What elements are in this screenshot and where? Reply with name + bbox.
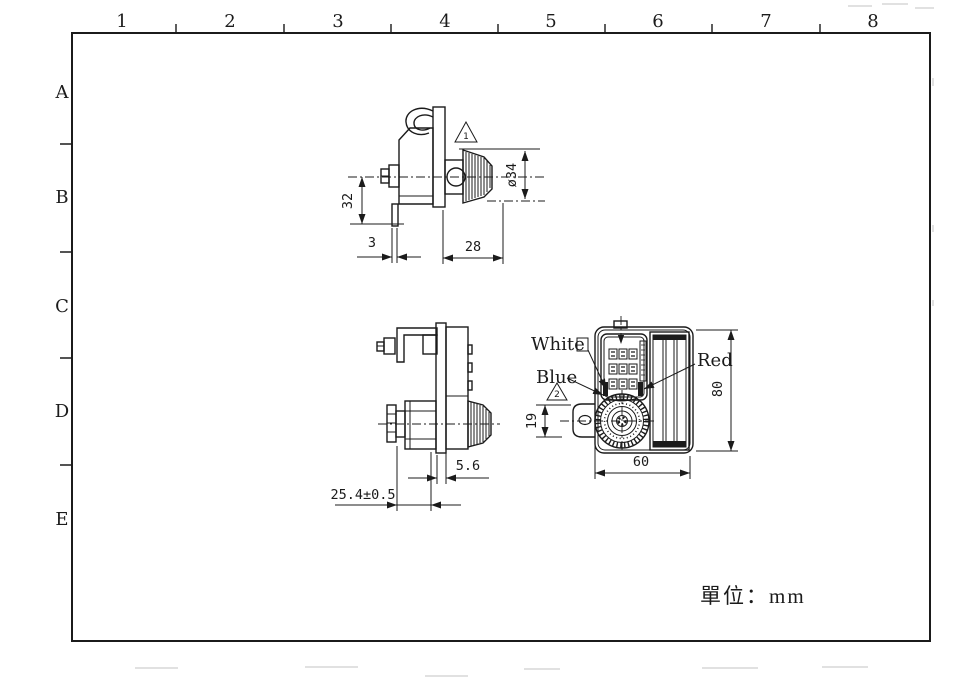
- column-ticks: [176, 24, 820, 33]
- digit-wheel-marks: [611, 352, 635, 386]
- border-frame: [72, 33, 930, 641]
- row-label: C: [55, 296, 69, 317]
- profile-view: 5.6 25.4±0.5: [330, 323, 500, 511]
- note-triangle-1: 1: [455, 122, 477, 142]
- dim-latch-offset: 3: [368, 235, 376, 251]
- label-red: Red: [697, 350, 733, 371]
- column-label: 5: [545, 11, 556, 32]
- drawing-frame: 1 2 3 4 5 6 7 8 A B C D E: [55, 11, 931, 641]
- front-view: White Blue Red 2 19 80 60: [524, 316, 738, 479]
- row-labels: A B C D E: [55, 82, 70, 530]
- label-blue: Blue: [536, 367, 577, 388]
- row-label: D: [55, 401, 69, 422]
- unit-note: 單位：mm: [700, 584, 806, 608]
- digit-wheels: [603, 341, 646, 401]
- note-ref-number: 2: [554, 390, 560, 400]
- note-ref-number: 1: [463, 132, 469, 142]
- technical-drawing-canvas: 1 2 3 4 5 6 7 8 A B C D E: [0, 0, 960, 683]
- row-label: E: [55, 509, 68, 530]
- column-label: 6: [652, 11, 663, 32]
- door-panel: [650, 332, 689, 450]
- red-leader-line: [644, 364, 695, 389]
- row-label: A: [55, 82, 70, 103]
- column-label: 7: [760, 11, 771, 32]
- column-label: 3: [332, 11, 343, 32]
- white-leader-line: [588, 350, 606, 389]
- dim-body-height: 80: [710, 381, 726, 397]
- dim-body-width: 60: [633, 454, 649, 470]
- front-view-outline: [573, 321, 693, 453]
- column-label: 1: [116, 11, 127, 32]
- dim-knob-diameter: ø34: [504, 163, 520, 187]
- column-label: 8: [867, 11, 878, 32]
- row-label: B: [55, 187, 68, 208]
- dim-height: 32: [340, 193, 356, 209]
- side-view: 1 ø34 32 3 28: [340, 107, 545, 264]
- dim-depth: 28: [465, 239, 481, 255]
- dim-cam-thickness: 5.6: [456, 458, 480, 474]
- column-label: 2: [224, 11, 235, 32]
- column-label: 4: [439, 11, 450, 32]
- wheel-flank-right: [638, 382, 643, 396]
- dim-grip-length: 25.4±0.5: [330, 487, 395, 503]
- dim-latch-height: 19: [524, 413, 540, 429]
- drawing-sheet: 1 2 3 4 5 6 7 8 A B C D E: [0, 0, 960, 683]
